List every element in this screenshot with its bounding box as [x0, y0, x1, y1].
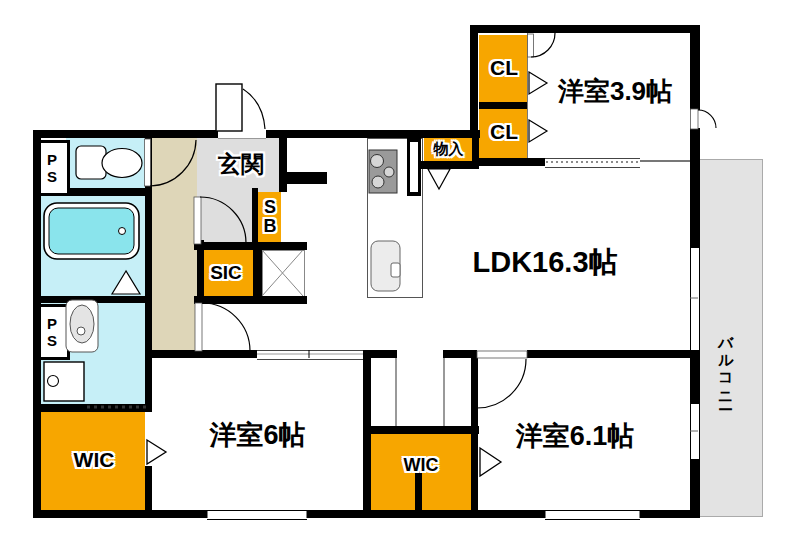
monoire-label: 物入	[425, 141, 472, 157]
wall-block-left	[470, 25, 478, 138]
pipe-space-top: PS	[38, 140, 70, 196]
wall-sic-bottom	[194, 296, 307, 304]
window-bed6	[207, 510, 307, 520]
entrance-door-arc	[243, 89, 265, 129]
wall-right-3	[690, 350, 700, 404]
wall-vestibule-left	[363, 350, 397, 358]
wic-center-label: WIC	[379, 456, 463, 475]
vestibule-line-1	[395, 358, 397, 428]
hallway-floor	[152, 138, 197, 350]
wall-top-right	[470, 25, 700, 33]
wall-bath-wash	[33, 296, 152, 303]
wall-bed39-bottom	[472, 158, 545, 166]
wall-sb-left	[252, 188, 258, 242]
wall-stub-kitchen	[287, 172, 327, 184]
monoire-door-marker	[428, 169, 450, 189]
ldk-door-arc	[202, 303, 250, 351]
kitchen-partition-slit	[410, 142, 418, 192]
bedroom-61-label: 洋室6.1帖	[470, 422, 680, 450]
wic-left-label: WIC	[50, 449, 138, 471]
wall-wicc-stub	[415, 470, 422, 518]
sliding-door-bed39	[545, 158, 640, 168]
floor-plan: PS PS	[0, 0, 800, 548]
window-ldk-balcony	[690, 248, 700, 350]
wall-monoire-bottom	[421, 161, 479, 169]
sliding-door-bed6	[257, 350, 363, 360]
bed61-door-leaf	[477, 351, 527, 358]
wall-sanitary-right	[145, 137, 152, 412]
bed39-bottom-line	[640, 160, 690, 162]
entrance-opening	[218, 130, 266, 139]
sb-label: SB	[261, 198, 279, 236]
wall-sic-top	[194, 242, 307, 250]
vestibule-line-2	[443, 358, 445, 428]
wall-bed6-right	[363, 350, 371, 518]
pipe-space-bottom: PS	[38, 304, 70, 360]
ps-bottom-label: PS	[47, 315, 61, 350]
entrance-door-leaf	[216, 84, 242, 131]
wall-right-4	[690, 459, 700, 518]
wall-ldk-bottom-left	[145, 350, 257, 358]
window-bed61-balcony	[690, 404, 700, 459]
wall-right-2	[690, 128, 700, 248]
ps-top-label: PS	[47, 151, 61, 186]
bed39-balcony-door-leaf	[691, 109, 699, 129]
entrance-label: 玄関	[200, 152, 282, 176]
bedroom-39-label: 洋室3.9帖	[535, 78, 695, 105]
wall-vestibule-right	[443, 350, 477, 358]
sic-label: SIC	[199, 263, 253, 283]
ldk-label: LDK16.3帖	[430, 247, 660, 277]
wall-bed61-top	[527, 350, 700, 358]
wall-cl-divider	[479, 102, 527, 109]
wic-center-door-marker	[480, 448, 501, 476]
bed39-balcony-door-arc	[698, 110, 716, 128]
window-bed61	[545, 510, 640, 520]
wall-wash-wic	[33, 404, 152, 412]
wall-wicl-right	[145, 466, 152, 518]
bedroom-6-label: 洋室6帖	[160, 421, 355, 449]
balcony-label: バルコニー	[718, 325, 734, 403]
bed61-door-arc	[477, 359, 526, 408]
cl-upper-label: CL	[481, 57, 527, 79]
cl-door-band	[527, 33, 535, 158]
toilet-room-floor	[66, 138, 145, 188]
cl-lower-label: CL	[481, 121, 527, 143]
bath-room-floor	[41, 196, 145, 296]
wall-sic-shaft	[253, 250, 262, 296]
wall-wicc-top	[363, 426, 479, 434]
shaft-box	[262, 250, 305, 298]
